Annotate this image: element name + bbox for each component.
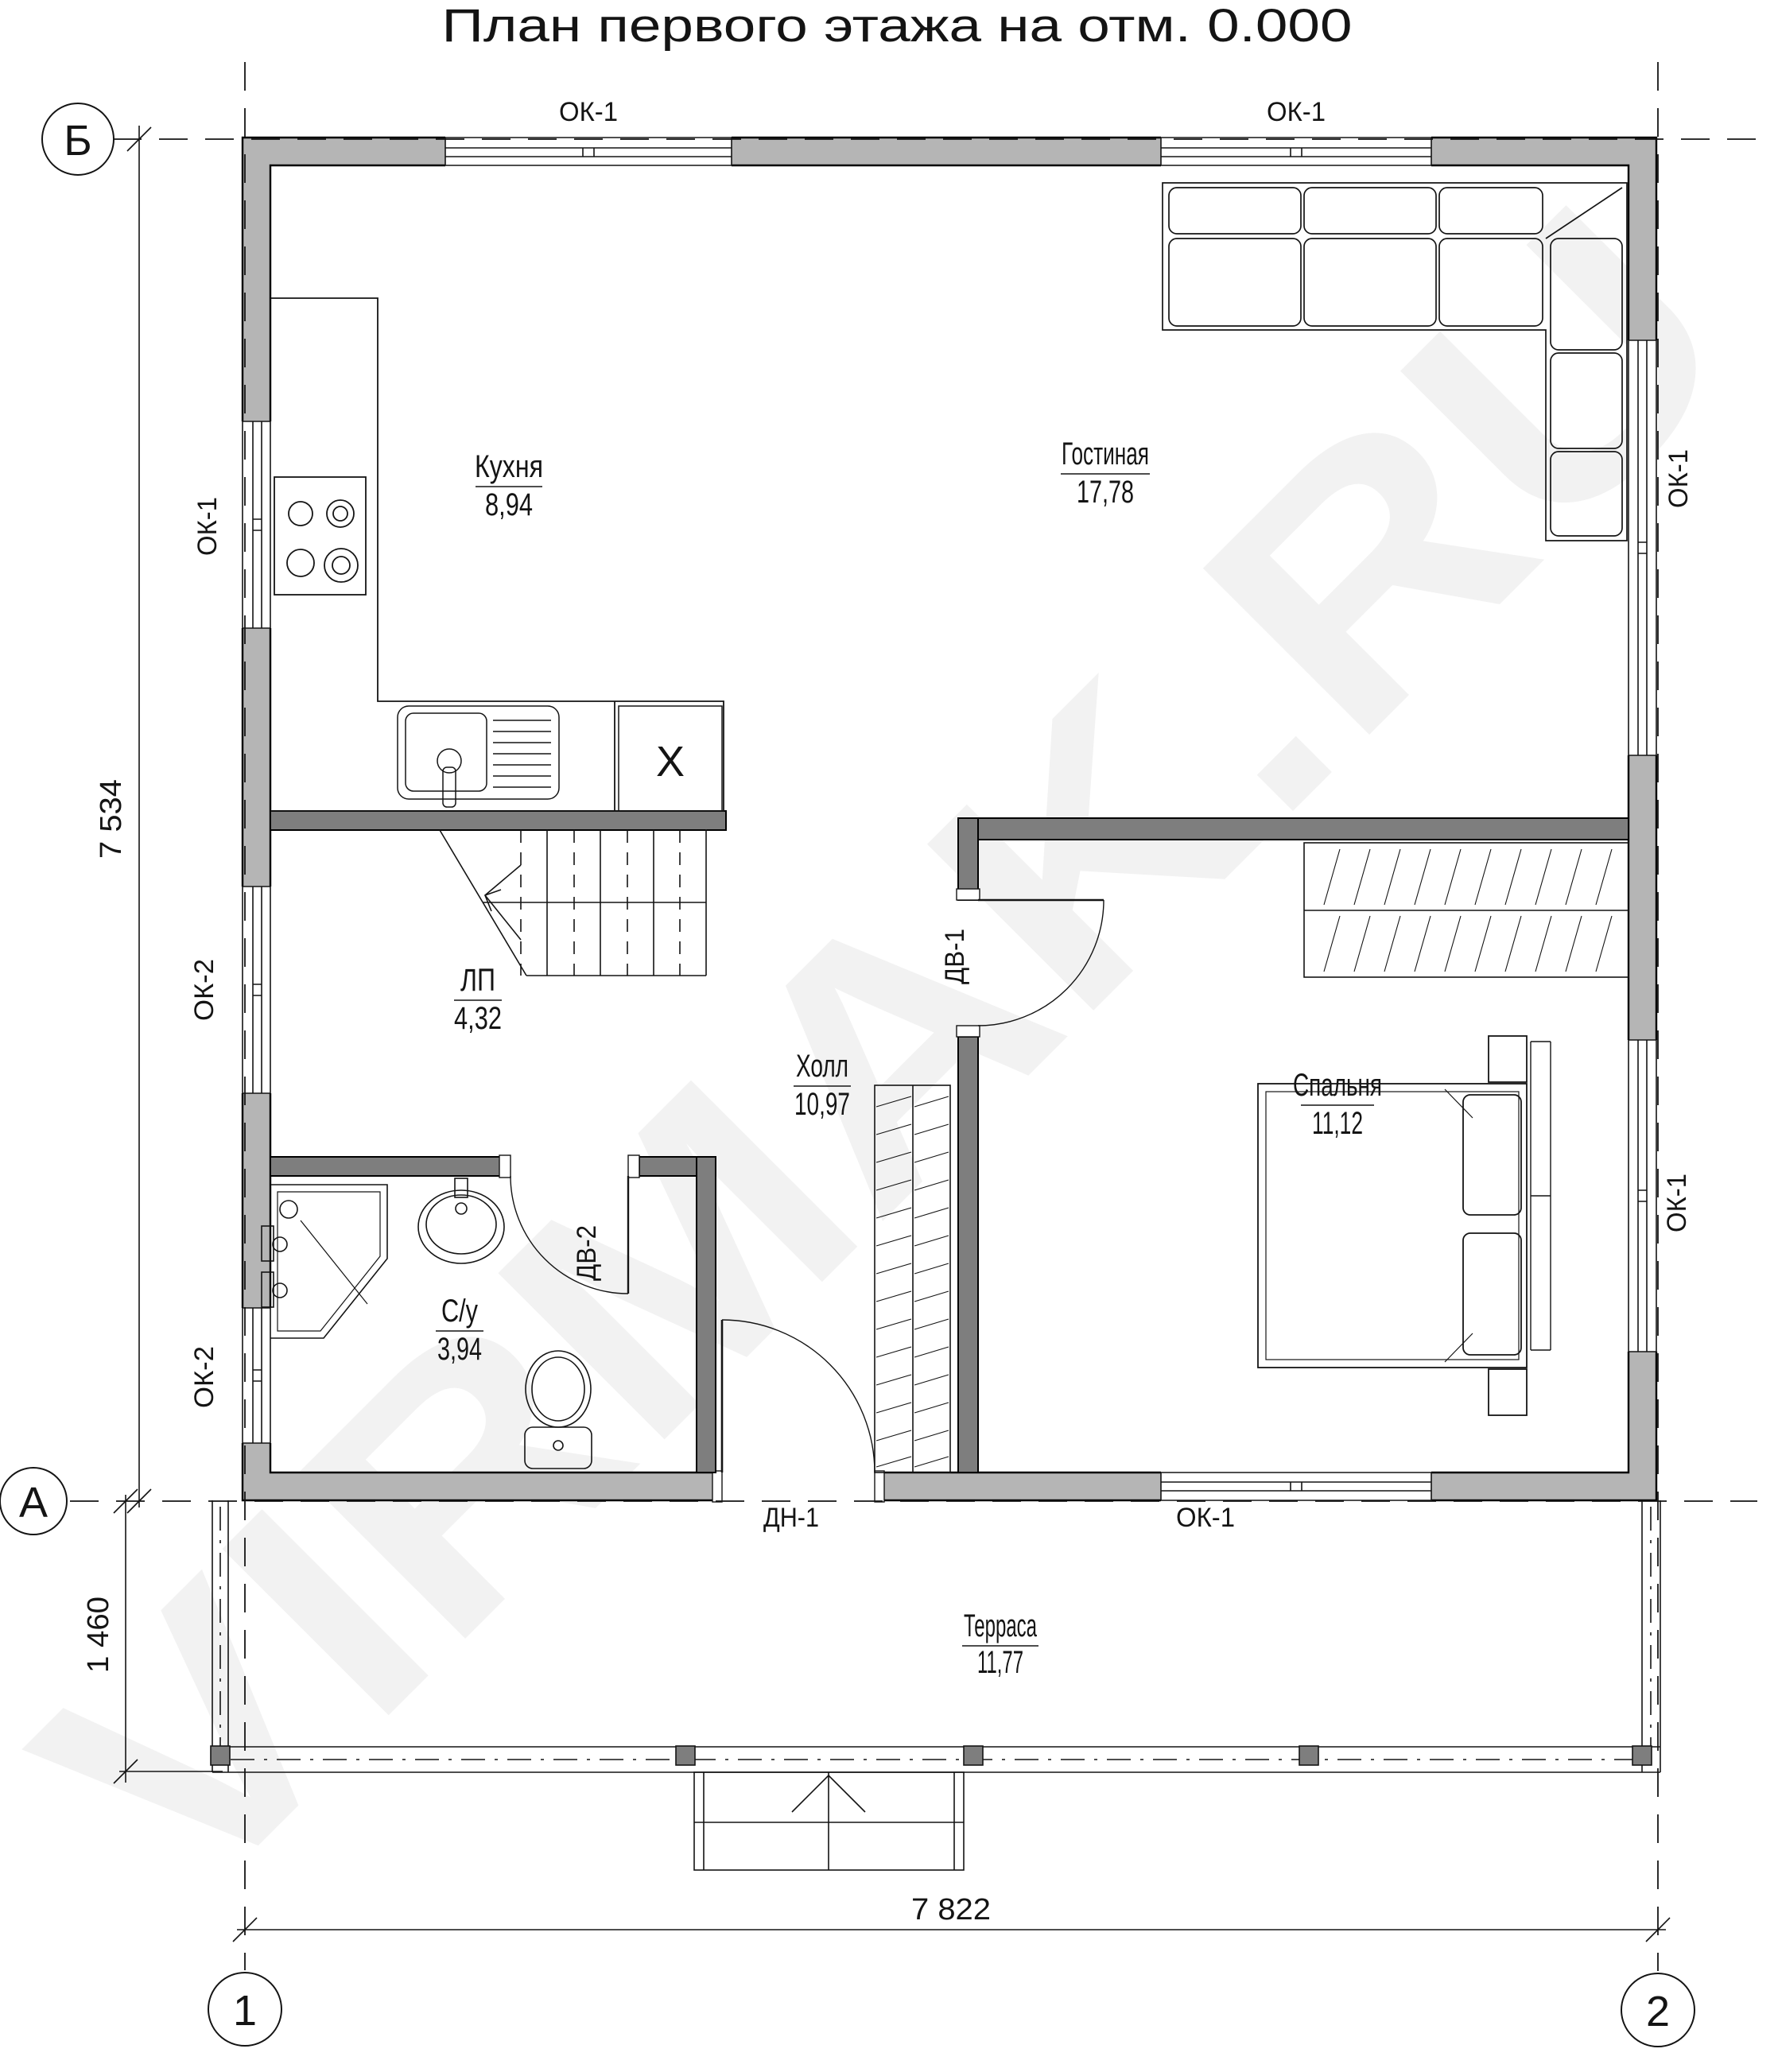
dim-bottom-total: 7 822 (911, 1893, 991, 1926)
room-terrace-area: 11,77 (977, 1645, 1023, 1680)
stairs (440, 829, 706, 976)
washing-machine-mark: X (656, 738, 685, 786)
bedroom-closet (1304, 843, 1629, 977)
label-ok1-right-lower: ОК-1 (1662, 1174, 1692, 1232)
wall-bedroom-west-upper (958, 818, 978, 900)
wall-kitchen-stairs (270, 811, 726, 830)
axis-label-a: А (19, 1479, 48, 1527)
room-bedroom-area: 11,12 (1312, 1106, 1363, 1141)
room-terrace-label: Терраса (964, 1608, 1037, 1643)
pillow (1463, 1095, 1521, 1215)
label-ok1-bottom: ОК-1 (1176, 1503, 1235, 1533)
stove-icon (274, 477, 366, 595)
label-ok1-left: ОК-1 (192, 497, 223, 556)
window-ok1-right-lower (1627, 1040, 1658, 1352)
room-living-area: 17,78 (1077, 475, 1134, 510)
wall-bathroom-east (697, 1157, 716, 1473)
nightstand (1489, 1369, 1527, 1415)
dim-left-terrace: 1 460 (82, 1597, 115, 1673)
page-title: План первого этажа на отм. 0.000 (442, 0, 1353, 52)
room-living-label: Гостиная (1062, 437, 1149, 471)
window-ok1-right-upper (1627, 340, 1658, 755)
wall-bedroom-west-lower (958, 1037, 978, 1473)
room-wc-area: 3,94 (437, 1332, 482, 1367)
nightstand (1489, 1036, 1527, 1082)
pillow (1463, 1233, 1521, 1355)
room-stairs-area: 4,32 (454, 1001, 502, 1036)
room-stairs-label: ЛП (460, 963, 495, 998)
kitchen-sink-icon (398, 706, 559, 807)
label-dv1: ДВ-1 (940, 929, 970, 984)
window-sill (1531, 1042, 1551, 1350)
label-ok1-right-upper: ОК-1 (1663, 449, 1694, 508)
window-ok1-top-right (1161, 136, 1431, 167)
dim-left-main: 7 534 (95, 779, 128, 859)
wall-bedroom-north (978, 818, 1629, 840)
label-dv2: ДВ-2 (572, 1225, 602, 1281)
kitchen-counter (270, 298, 724, 811)
window-ok1-bottom (1161, 1471, 1431, 1502)
window-ok1-top-left (445, 136, 732, 167)
room-hall-label: Холл (796, 1049, 848, 1084)
label-dn1: ДН-1 (763, 1503, 819, 1533)
room-kitchen-area: 8,94 (485, 487, 533, 522)
axis-label-b: Б (64, 117, 91, 165)
floor-plan-canvas: VIRMAK.RU План первого этажа на отм. 0.0… (0, 0, 1778, 2072)
room-wc-label: С/у (441, 1294, 478, 1329)
label-ok1-top-right: ОК-1 (1267, 97, 1326, 127)
room-kitchen-label: Кухня (475, 449, 543, 484)
room-bedroom-label: Спальня (1293, 1068, 1382, 1103)
axis-label-1: 1 (233, 1987, 257, 2035)
entrance-steps (694, 1772, 964, 1870)
label-ok2-left-upper: ОК-2 (189, 959, 219, 1021)
label-ok1-top-left: ОК-1 (559, 97, 618, 127)
wall-bathroom-top-left (270, 1157, 509, 1176)
axis-label-2: 2 (1646, 1988, 1670, 2035)
room-hall-area: 10,97 (794, 1087, 850, 1122)
label-ok2-left-lower: ОК-2 (189, 1346, 219, 1408)
